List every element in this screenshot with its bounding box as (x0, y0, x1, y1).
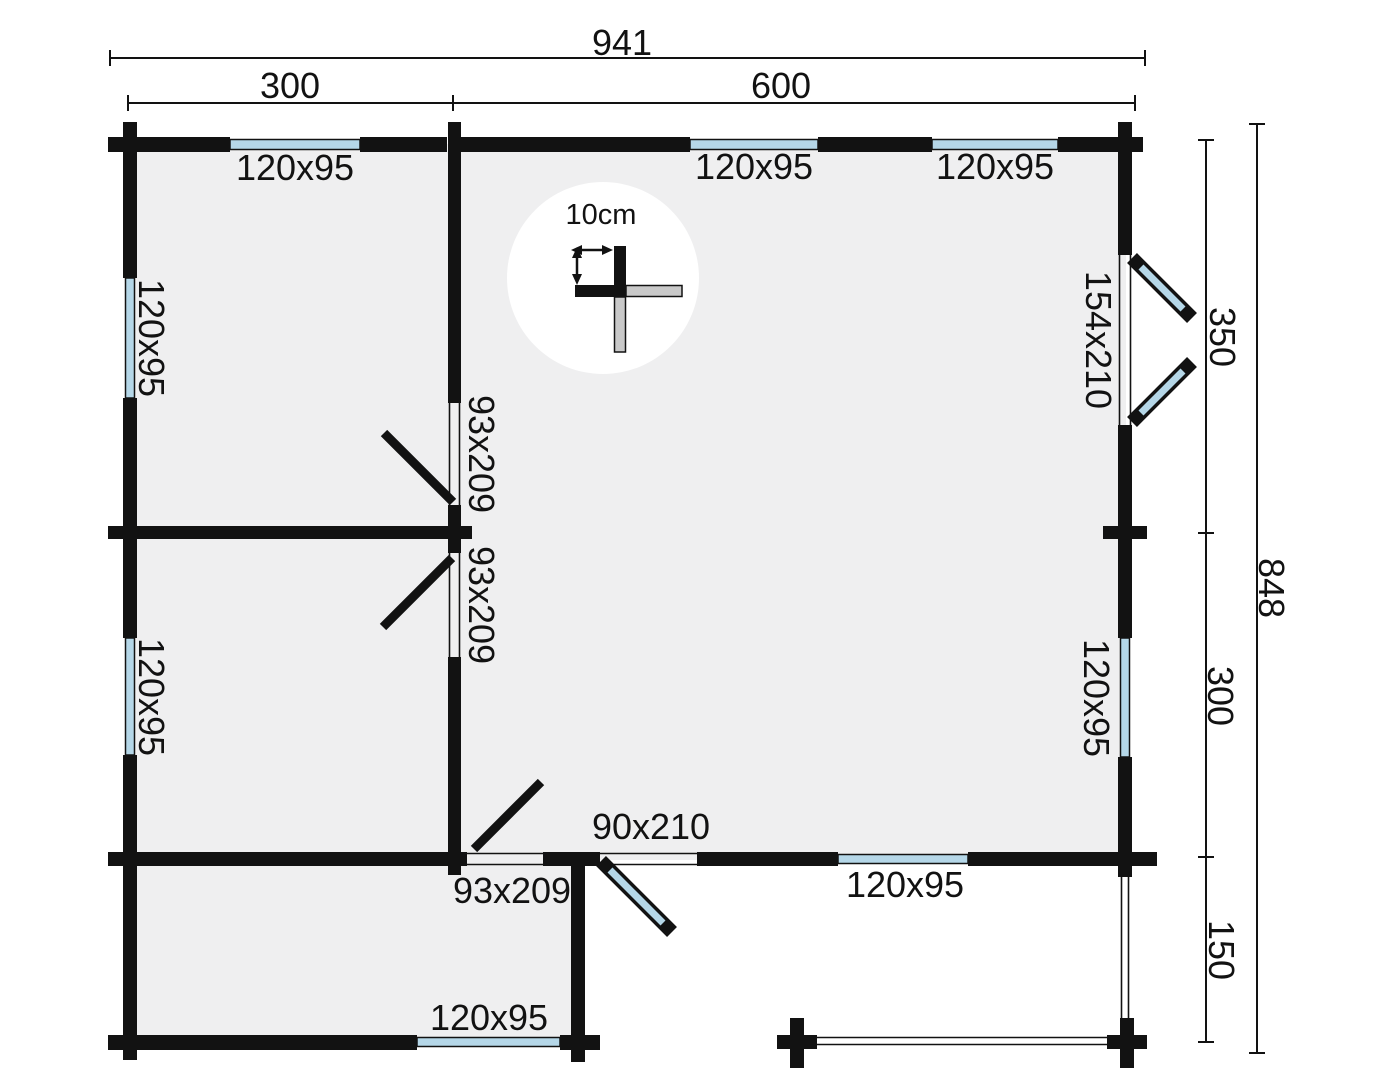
label-window-bottom-main: 120x95 (846, 864, 964, 905)
scale-wall-black-horizontal (575, 285, 626, 297)
label-window-annex-bottom: 120x95 (430, 997, 548, 1038)
label-window-top-right: 120x95 (936, 146, 1054, 187)
dim-total-width: 941 (592, 22, 652, 63)
label-door-interior-upper: 93x209 (461, 395, 502, 513)
scale-label: 10cm (566, 199, 637, 231)
dim-left-width: 300 (260, 65, 320, 106)
label-window-left-upper: 120x95 (131, 279, 172, 397)
dim-total-height: 848 (1251, 558, 1292, 618)
scale-wall-gray-horizontal (626, 286, 682, 297)
label-double-door-right: 154x210 (1078, 271, 1119, 409)
dim-right-middle: 300 (1200, 666, 1241, 726)
label-window-top-left: 120x95 (236, 147, 354, 188)
dim-right-top: 350 (1202, 307, 1243, 367)
floor-plan-drawing: 10cm 941 300 600 350 300 150 848 120x95 … (0, 0, 1400, 1087)
scale-indicator: 10cm (507, 182, 699, 374)
dim-right-width: 600 (751, 65, 811, 106)
label-window-top-middle: 120x95 (695, 146, 813, 187)
window-bottom-main (838, 855, 968, 864)
label-back-door: 90x210 (592, 806, 710, 847)
label-door-annex: 93x209 (453, 870, 571, 911)
label-window-left-lower: 120x95 (131, 638, 172, 756)
terrace (777, 877, 1147, 1068)
scale-wall-gray-vertical (615, 297, 626, 352)
terrace-post-left (777, 1018, 817, 1068)
dim-terrace-depth: 150 (1201, 920, 1242, 980)
label-door-interior-lower: 93x209 (461, 546, 502, 664)
window-right-side (1121, 638, 1130, 757)
terrace-post-right (1107, 1018, 1147, 1068)
window-annex-bottom (417, 1038, 560, 1047)
label-window-right-side: 120x95 (1076, 639, 1117, 757)
floor-plan-page: 10cm 941 300 600 350 300 150 848 120x95 … (0, 0, 1400, 1087)
